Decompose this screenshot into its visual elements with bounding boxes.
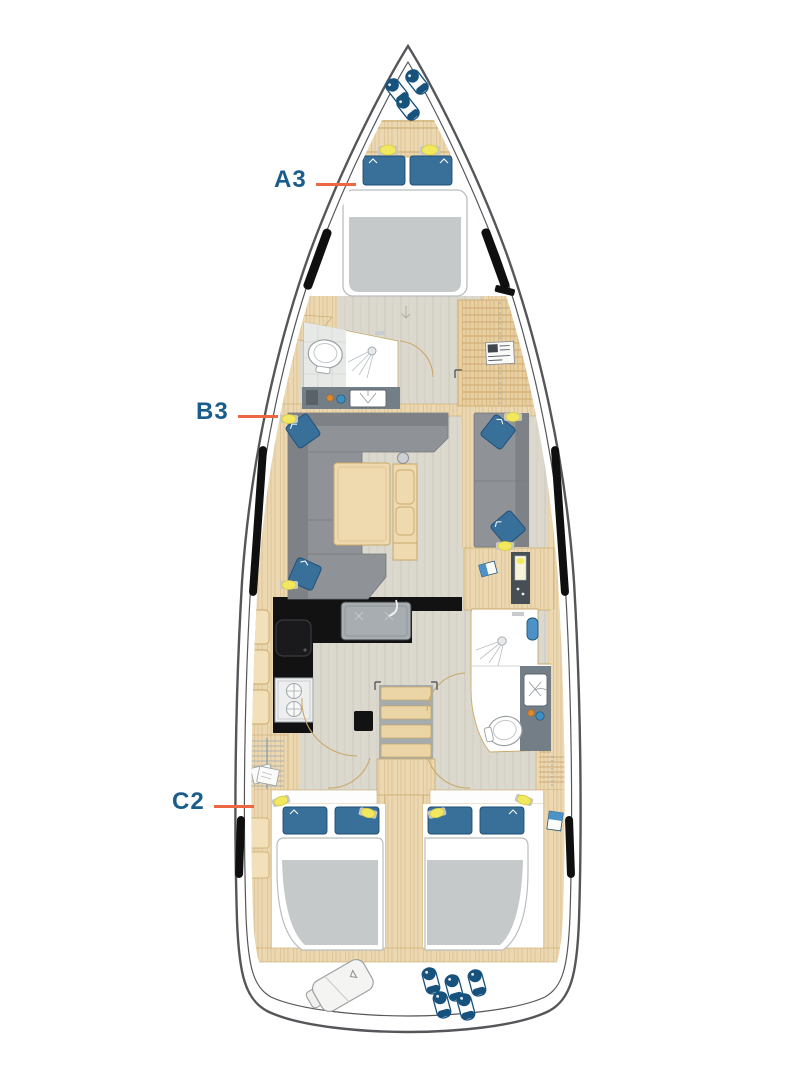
mast-post-icon: [398, 453, 409, 464]
pointer-line: [214, 805, 254, 808]
double-berth-icon: [425, 838, 528, 950]
label-forward-cabin: A3: [274, 166, 356, 194]
companionway-steps-icon: [377, 685, 435, 795]
nav-desk: [464, 548, 554, 610]
salon-table-icon: [334, 463, 417, 560]
galley-sink-icon: [341, 600, 411, 640]
shampoo-bottle-icon: [527, 618, 538, 640]
stove-icon: [276, 620, 311, 656]
label-c2-text: C2: [172, 788, 205, 816]
aft-cabins: [246, 790, 569, 962]
floor-plan-drawing: [0, 0, 810, 1080]
pointer-line: [238, 415, 278, 418]
label-salon: B3: [196, 398, 278, 426]
label-b3-text: B3: [196, 398, 229, 426]
sink-icon: [350, 390, 386, 407]
label-a3-text: A3: [274, 166, 307, 194]
pointer-line: [316, 183, 356, 186]
galley-island: [354, 711, 373, 731]
double-berth-icon: [277, 838, 383, 950]
double-berth-icon: [343, 190, 467, 296]
label-aft-cabin: C2: [172, 788, 254, 816]
sink-icon: [524, 674, 547, 706]
chart-icon: [485, 341, 514, 364]
book-icon: [547, 811, 563, 831]
hanging-locker-icon: [246, 735, 288, 791]
electrical-panel-icon: [511, 552, 530, 604]
yacht-floor-plan: A3 B3 C2: [0, 0, 810, 1080]
oven-burners-icon: [275, 678, 313, 722]
